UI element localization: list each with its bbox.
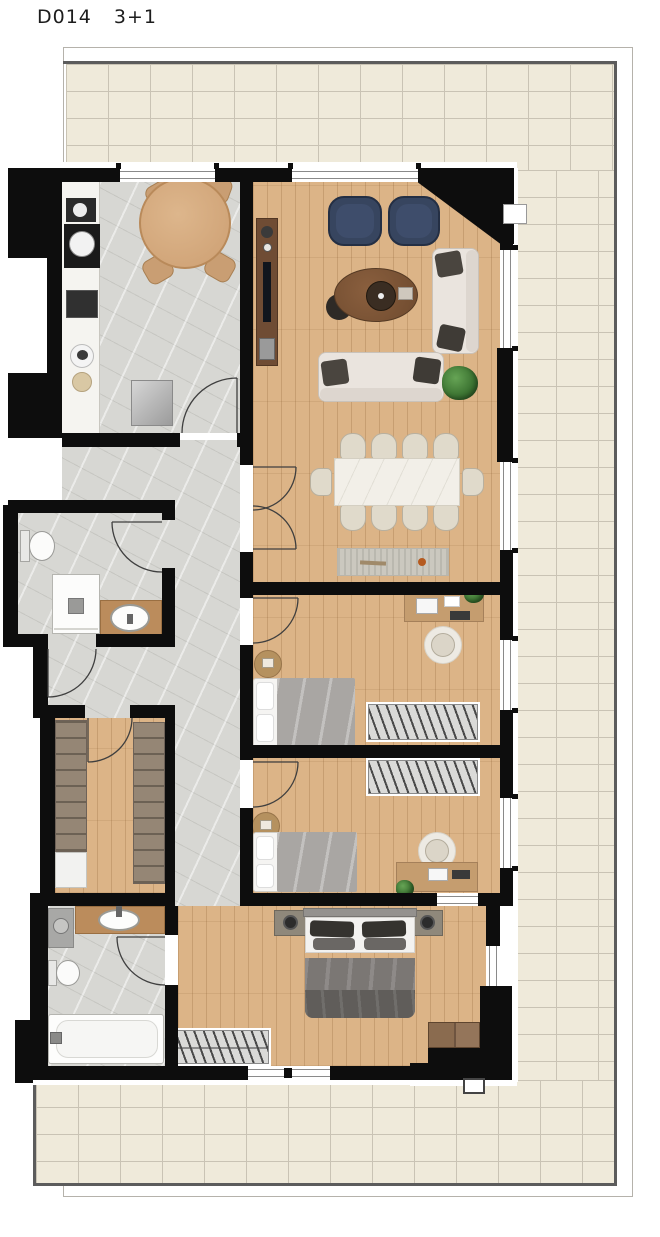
door-bathroom1 <box>112 522 162 572</box>
door-kitchen <box>182 378 237 433</box>
door-living-double-bottom <box>253 506 296 549</box>
door-bedroom1 <box>253 598 298 643</box>
door-closet <box>88 718 132 762</box>
door-vestibule <box>48 649 96 697</box>
floor-plan: D0143+1 <box>0 0 660 1237</box>
door-bedroom2 <box>253 762 298 807</box>
door-arcs <box>0 0 660 1237</box>
door-living-double-top <box>253 467 296 510</box>
door-bathroom2 <box>117 937 165 985</box>
